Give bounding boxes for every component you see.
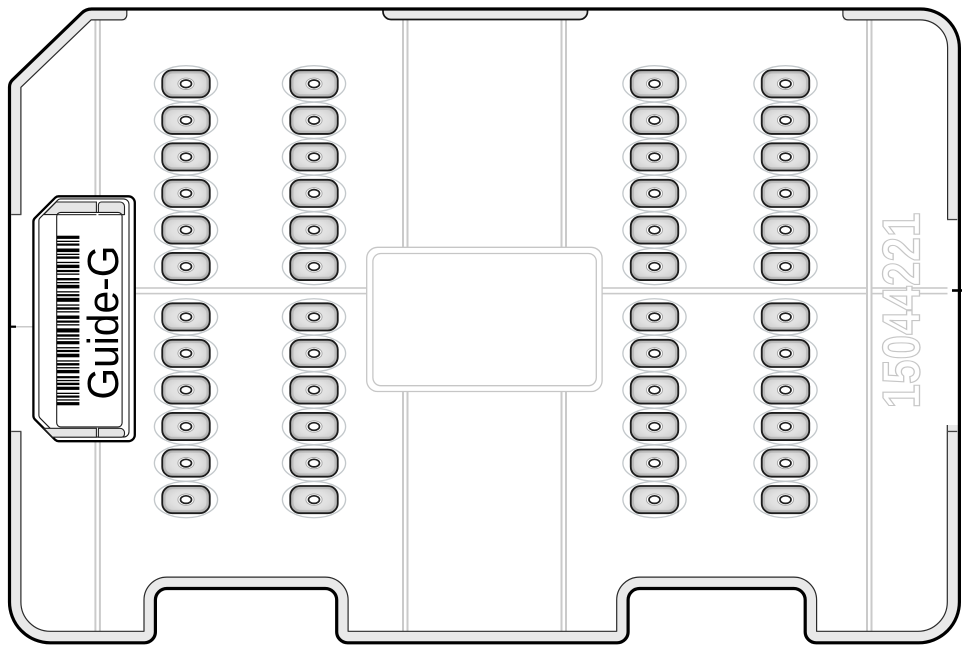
svg-text:Guide-G: Guide-G [79, 246, 128, 400]
svg-text:15044221: 15044221 [873, 213, 932, 409]
